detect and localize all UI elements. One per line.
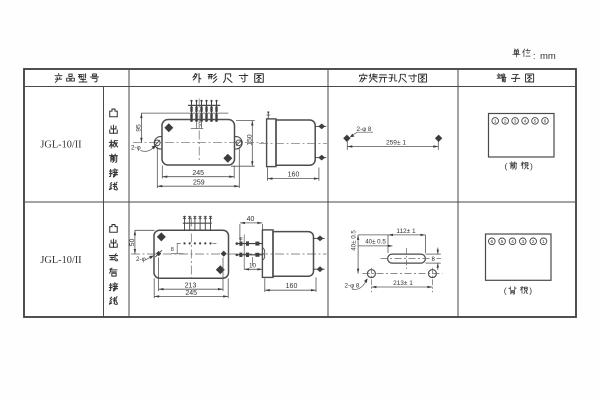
svg-text:150: 150 [246, 134, 253, 146]
svg-text:213: 213 [185, 282, 197, 289]
svg-text:10: 10 [198, 122, 203, 127]
svg-text:112± 1: 112± 1 [396, 228, 416, 235]
svg-text:): ) [529, 286, 532, 296]
svg-text:10: 10 [249, 262, 257, 269]
svg-text:JGL-10/II: JGL-10/II [40, 255, 82, 266]
svg-text:40± 0.5: 40± 0.5 [365, 239, 386, 246]
svg-text:3: 3 [521, 239, 524, 245]
svg-text:JGL-10/II: JGL-10/II [40, 140, 82, 151]
svg-text:4: 4 [524, 119, 527, 125]
svg-text:5: 5 [501, 239, 504, 245]
svg-text:245: 245 [192, 170, 204, 177]
svg-text:(: ( [504, 286, 507, 296]
svg-text:40: 40 [247, 216, 255, 223]
svg-text:160: 160 [288, 172, 300, 179]
svg-text:50: 50 [129, 238, 136, 246]
svg-text:213± 1: 213± 1 [393, 280, 413, 287]
svg-text:5: 5 [534, 119, 537, 125]
svg-text:mm: mm [540, 51, 556, 62]
svg-text:2: 2 [504, 119, 507, 125]
svg-text:1: 1 [542, 239, 545, 245]
svg-text:95: 95 [136, 124, 143, 132]
svg-text:6: 6 [544, 119, 547, 125]
svg-text:40± 0.5: 40± 0.5 [350, 230, 357, 251]
svg-text:1: 1 [494, 119, 497, 125]
svg-text:8: 8 [171, 247, 174, 253]
svg-text:4: 4 [511, 239, 514, 245]
svg-text:2-φ: 2-φ [136, 256, 146, 263]
svg-text::: : [533, 51, 536, 61]
svg-text:2: 2 [532, 239, 535, 245]
svg-text:259: 259 [193, 179, 205, 186]
svg-text:160: 160 [286, 283, 298, 290]
svg-text:): ) [530, 161, 533, 171]
svg-text:6: 6 [490, 239, 493, 245]
svg-text:2-φ: 2-φ [131, 144, 141, 151]
svg-text:3: 3 [514, 119, 517, 125]
svg-text:259± 1: 259± 1 [386, 140, 406, 147]
svg-text:245: 245 [185, 290, 197, 297]
svg-text:(: ( [505, 161, 508, 171]
svg-text:2-φ 8: 2-φ 8 [345, 283, 360, 290]
